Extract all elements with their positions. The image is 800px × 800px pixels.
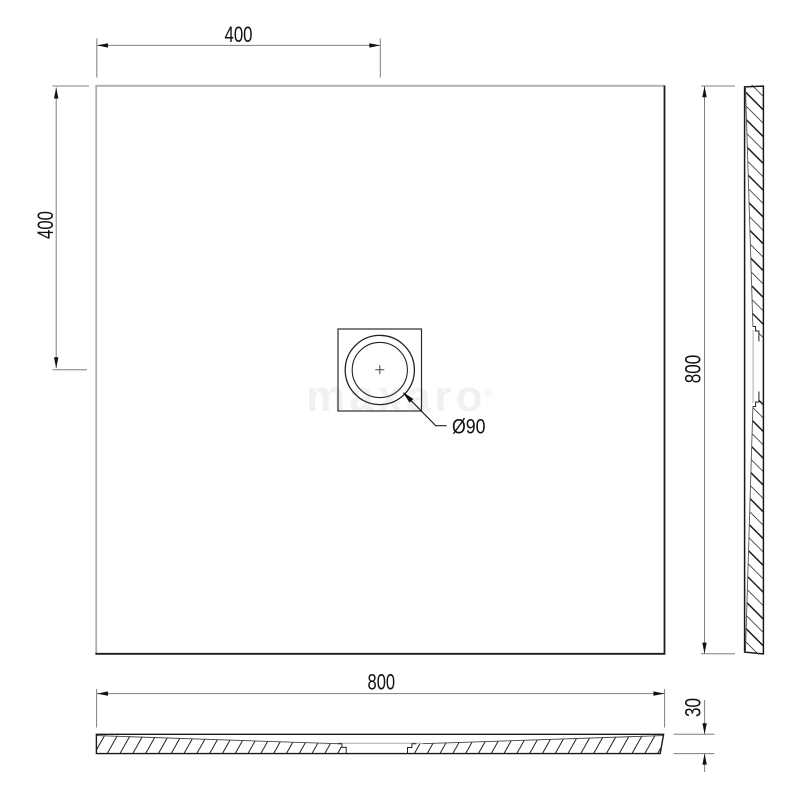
svg-text:400: 400 xyxy=(33,211,58,239)
svg-text:30: 30 xyxy=(680,698,705,717)
svg-text:400: 400 xyxy=(225,22,253,47)
svg-text:800: 800 xyxy=(680,355,705,384)
svg-text:Ø90: Ø90 xyxy=(452,416,486,439)
svg-text:®: ® xyxy=(484,385,494,400)
svg-text:maxaro: maxaro xyxy=(306,372,487,421)
svg-text:800: 800 xyxy=(368,670,396,695)
